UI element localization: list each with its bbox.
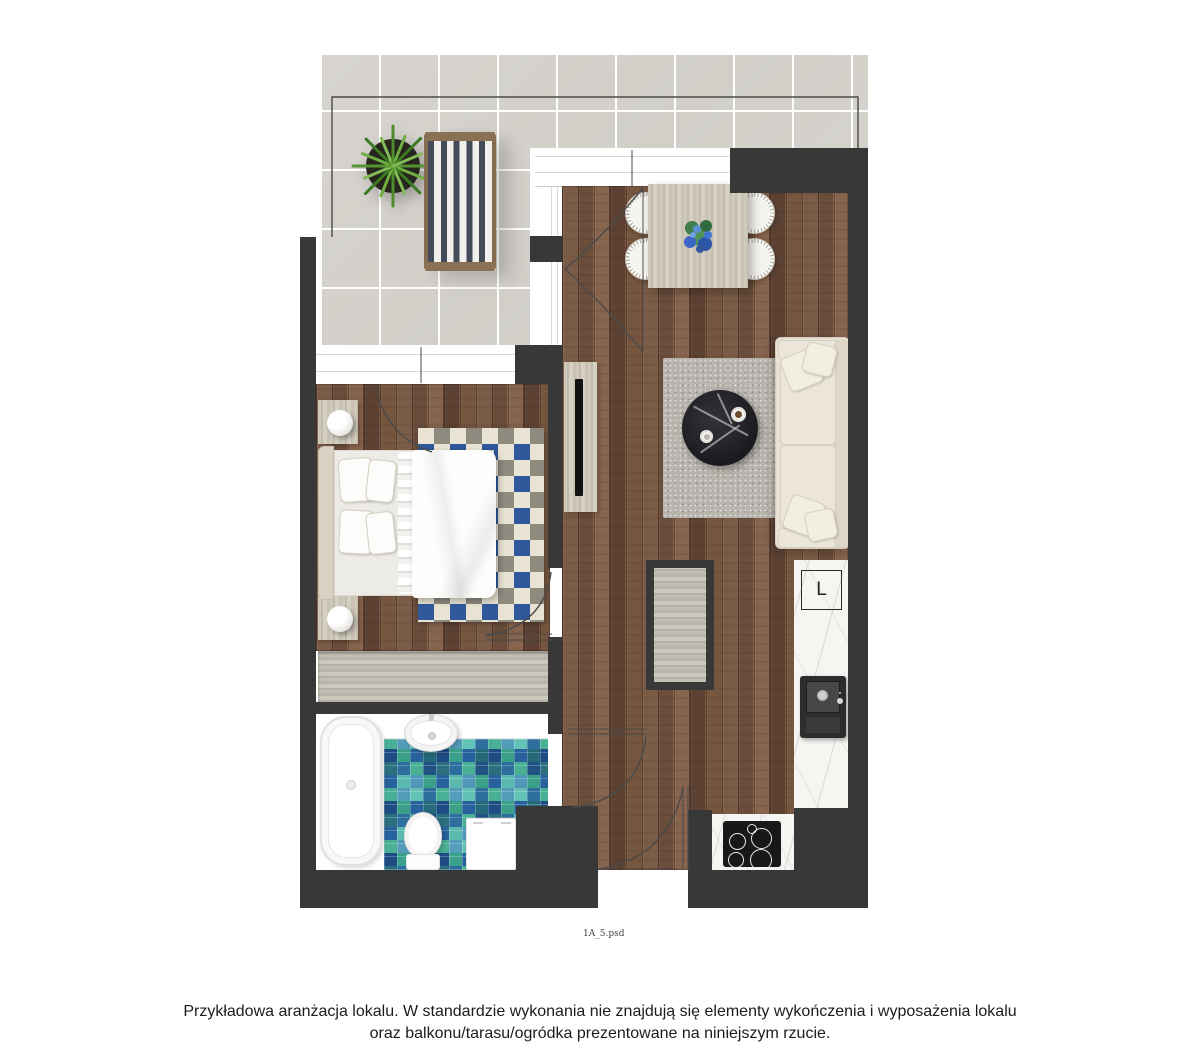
disclaimer-line-1: Przykładowa aranżacja lokalu. W standard… xyxy=(0,1001,1200,1023)
burner xyxy=(750,849,772,871)
toilet xyxy=(404,812,442,870)
bed-pillow xyxy=(365,459,397,504)
shaft-box xyxy=(646,560,714,690)
fridge-label: L xyxy=(816,579,827,601)
deck-chair-fabric xyxy=(428,141,492,262)
wall xyxy=(548,637,562,712)
shaft-interior xyxy=(654,568,706,682)
wall xyxy=(516,806,598,872)
wall xyxy=(300,237,316,908)
bed-headboard xyxy=(318,446,334,600)
washer-cabinet xyxy=(466,818,516,870)
wall xyxy=(548,384,562,568)
bed xyxy=(318,446,496,600)
table-flowers xyxy=(678,214,722,260)
toilet-bowl xyxy=(404,812,442,858)
coffee-cup xyxy=(700,430,713,443)
wardrobe xyxy=(318,651,558,705)
sink-faucet xyxy=(837,698,843,704)
disclaimer-line-2: oraz balkonu/tarasu/ogródka prezentowane… xyxy=(0,1023,1200,1045)
wall xyxy=(688,870,868,908)
sink-drain xyxy=(817,690,828,701)
burner xyxy=(728,852,744,868)
burner xyxy=(729,833,746,850)
sofa-pillow xyxy=(803,507,839,543)
burner-small xyxy=(747,824,757,834)
deck-chair-bar-top xyxy=(425,132,495,141)
sofa xyxy=(775,337,850,549)
duvet xyxy=(412,450,496,598)
kitchen-sink xyxy=(800,676,846,738)
sofa-backrest xyxy=(834,340,849,548)
coffee-table xyxy=(682,390,758,466)
bedroom-window xyxy=(316,345,515,385)
bathroom-sink xyxy=(404,714,458,752)
wall xyxy=(548,712,562,734)
wall xyxy=(730,148,850,193)
wall-mullion xyxy=(530,236,563,262)
deck-chair-rail-right xyxy=(492,134,496,269)
balcony-door xyxy=(535,148,730,187)
sink-drain xyxy=(428,732,436,740)
toilet-tank xyxy=(406,854,440,870)
bed-pillow xyxy=(365,511,397,556)
tv xyxy=(575,379,583,496)
floor-plan-canvas: L xyxy=(0,0,1200,1060)
wall xyxy=(848,148,868,908)
sink-lower-flap xyxy=(806,717,840,733)
coffee-cup xyxy=(731,407,746,422)
nightstand-lamp xyxy=(327,410,353,436)
bathtub xyxy=(320,716,382,866)
bathtub-drain xyxy=(346,780,356,790)
wall xyxy=(515,345,563,384)
wall xyxy=(794,808,850,872)
wall xyxy=(300,702,562,714)
wall xyxy=(688,810,712,872)
fridge-box: L xyxy=(801,570,842,610)
deck-chair-bar-bottom xyxy=(425,262,495,271)
nightstand-lamp xyxy=(327,606,353,632)
cooktop-hob xyxy=(723,821,781,867)
plan-filename: 1A_5.psd xyxy=(583,929,624,939)
deck-chair xyxy=(424,132,496,271)
wall xyxy=(300,870,598,908)
